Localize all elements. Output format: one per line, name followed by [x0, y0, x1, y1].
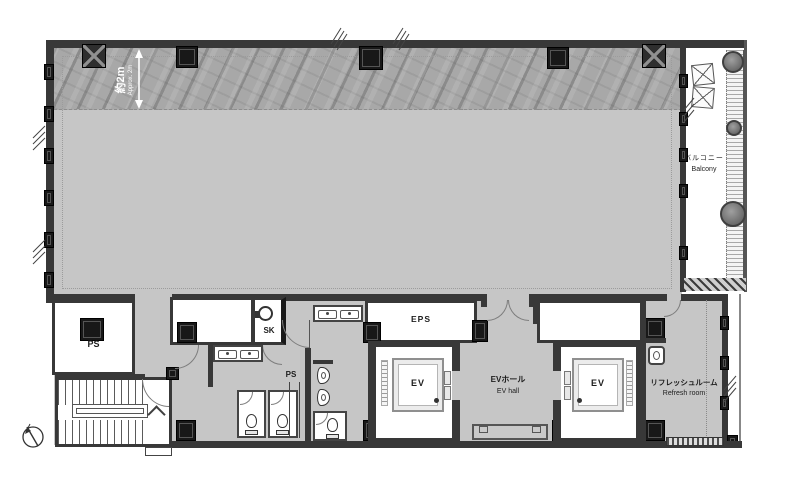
wall-ev-top — [368, 341, 458, 347]
column-x — [642, 44, 666, 68]
wall-break-icon — [328, 22, 348, 48]
room-upper-right — [537, 300, 643, 343]
stair-flight-upper — [58, 380, 148, 405]
room-label-ps-center: PS — [281, 371, 301, 379]
room-label-sk: SK — [252, 327, 286, 335]
dimension-label-en: Approx. 2m — [128, 48, 134, 112]
basin-icon — [318, 310, 337, 319]
room-label-ev-left: EV — [392, 379, 444, 388]
basin-icon — [218, 350, 237, 359]
column — [176, 420, 196, 441]
planter-icon — [722, 51, 744, 73]
sink-icon — [648, 346, 665, 365]
wall-core-d — [681, 294, 722, 301]
room-sk — [252, 297, 286, 345]
elevator-door-panel — [444, 386, 451, 400]
column — [679, 246, 688, 260]
dot — [577, 398, 582, 403]
wall-hall-left-a — [452, 341, 460, 371]
column — [44, 190, 54, 206]
slop-sink-spout — [255, 311, 260, 318]
wall-stair-top — [55, 374, 145, 379]
wall-break-icon — [31, 232, 49, 260]
planter-icon — [720, 201, 746, 227]
wall-balcony-bottom — [684, 278, 746, 291]
compass-icon — [14, 418, 52, 456]
dot — [434, 398, 439, 403]
wall-balcony-outer — [744, 40, 747, 292]
basin-icon — [340, 310, 359, 319]
column — [359, 46, 383, 70]
balcony-label-en: Balcony — [676, 166, 732, 173]
room-label-refresh-en: Refresh room — [644, 390, 724, 397]
elevator-guide-rail — [626, 360, 633, 406]
column — [44, 272, 54, 288]
slop-sink-icon — [258, 306, 273, 321]
expansion-joint-line — [706, 300, 707, 440]
column-x — [82, 44, 106, 68]
column — [645, 318, 665, 339]
wc-icon — [326, 418, 339, 439]
column — [177, 322, 197, 343]
column — [472, 320, 488, 342]
washbasin-counter — [213, 345, 263, 362]
leader-line — [299, 382, 300, 438]
elevator-guide-rail — [381, 360, 388, 406]
leader-line — [289, 382, 290, 438]
column — [80, 318, 104, 341]
wc-icon — [276, 414, 289, 435]
wc-icon — [245, 414, 258, 435]
balcony-equipment-icon — [691, 63, 715, 86]
room-label-eps: EPS — [365, 315, 477, 324]
elevator-door-panel — [444, 371, 451, 385]
hall-niche-notch — [532, 426, 541, 433]
planter-icon — [726, 120, 742, 136]
column — [547, 47, 569, 69]
wall-break-icon — [722, 368, 740, 398]
room-label-ev-hall-en: EV hall — [483, 388, 533, 395]
column — [679, 184, 688, 198]
elevator-door-panel — [564, 371, 571, 385]
basin-icon — [240, 350, 259, 359]
wall-ev-left — [368, 341, 376, 445]
wall-break-icon — [682, 92, 698, 118]
wall-men — [305, 348, 311, 443]
wall-refresh-stub — [640, 338, 666, 343]
floor-plan: 約2m Approx. 2m バルコニー Balcony PS SK PS — [0, 0, 787, 498]
door-recess — [529, 294, 535, 307]
column — [44, 148, 54, 164]
dimension-label-ja: 約2m — [112, 48, 128, 112]
room-label-ev-right: EV — [572, 379, 624, 388]
column — [720, 316, 729, 330]
stair-landing-step — [145, 447, 172, 456]
louver-strip — [666, 437, 724, 446]
stair-flight-lower — [58, 420, 148, 444]
room-label-ev-hall-ja: EVホール — [478, 376, 538, 384]
sink-bowl — [653, 351, 660, 360]
stair-handrail-inner — [76, 408, 144, 414]
wall-break-icon — [31, 118, 49, 146]
column — [44, 64, 54, 80]
wall-refresh-left — [640, 300, 646, 443]
office-inner-dotted-line — [62, 56, 672, 289]
door-leaf — [309, 320, 310, 348]
wall-ev-bottom2 — [553, 438, 644, 445]
washbasin-counter — [313, 305, 363, 322]
balcony-deck — [726, 50, 744, 278]
column — [176, 46, 198, 68]
elevator-door-panel — [564, 386, 571, 400]
wall-hall-left-b — [452, 400, 460, 445]
hall-niche-notch — [479, 426, 488, 433]
wall-ev-bottom — [368, 438, 458, 445]
balcony-label-ja: バルコニー — [676, 155, 732, 162]
dimension-label: 約2m Approx. 2m — [112, 48, 136, 112]
wall-break-icon — [390, 22, 410, 48]
column — [363, 322, 381, 343]
room-label-ps-left: PS — [52, 340, 135, 349]
wall-men-stub — [313, 360, 333, 364]
column — [645, 420, 665, 441]
room-label-refresh-ja: リフレッシュルーム — [644, 379, 724, 387]
column — [679, 74, 688, 88]
